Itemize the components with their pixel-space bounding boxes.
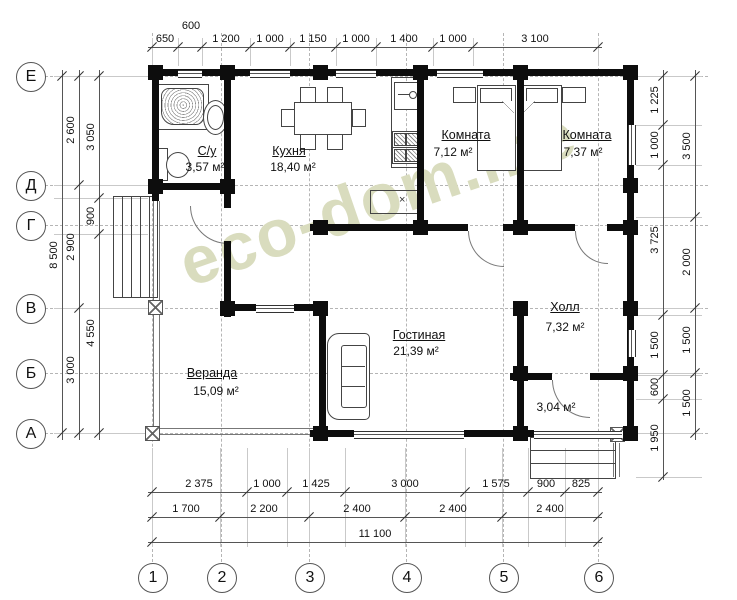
log-joint-square — [513, 220, 528, 235]
dim-extension-line — [345, 448, 346, 547]
dim-extension-line — [54, 433, 148, 434]
dim-extension-line — [250, 38, 251, 66]
log-joint-square — [623, 366, 638, 381]
log-joint-square — [513, 301, 528, 316]
window — [534, 431, 622, 439]
dim-extension-line — [220, 448, 221, 547]
dimension-label: 900 — [85, 207, 97, 225]
dim-extension-line — [465, 448, 466, 547]
log-joint-square — [513, 366, 528, 381]
wall-segment — [517, 69, 524, 232]
dimension-label: 1 700 — [172, 503, 200, 515]
dimension-label: 11 100 — [359, 528, 392, 540]
dimension-label: 600 — [182, 20, 200, 32]
room-area-entry: 3,04 м² — [537, 400, 576, 414]
dim-extension-line — [636, 477, 702, 478]
dimension-label: 1 200 — [212, 33, 240, 45]
dimension-label: 600 — [649, 378, 661, 396]
porch-steps — [530, 437, 616, 479]
dimension-label: 2 400 — [343, 503, 371, 515]
porch-step-line — [531, 450, 615, 451]
dim-extension-line — [405, 448, 406, 547]
dimension-chain-line — [79, 70, 80, 440]
window — [628, 125, 636, 165]
dimension-label: 1 000 — [439, 33, 467, 45]
log-joint-square — [513, 426, 528, 441]
room-label-veranda: Веранда — [187, 366, 237, 380]
stove-burner — [394, 133, 406, 146]
door-arc — [468, 231, 504, 267]
chair — [327, 134, 343, 150]
window — [628, 330, 636, 357]
stove-burner — [394, 149, 406, 162]
dimension-label: 1 500 — [681, 326, 693, 354]
chair — [327, 87, 343, 103]
dimension-label: 4 550 — [85, 319, 97, 347]
dim-extension-line — [528, 448, 529, 547]
dimension-label: 1 400 — [390, 33, 418, 45]
log-joint-square — [313, 426, 328, 441]
dimension-label: 2 375 — [185, 478, 213, 490]
blanket-fold — [523, 101, 535, 113]
log-joint-square — [220, 179, 235, 194]
log-joint-square — [413, 220, 428, 235]
window — [354, 431, 464, 439]
dimension-label: 2 000 — [681, 248, 693, 276]
dining-table — [294, 102, 352, 135]
dimension-label: 825 — [572, 478, 590, 490]
dimension-label: 1 500 — [649, 331, 661, 359]
dimension-chain-line — [695, 70, 696, 440]
door-arc — [575, 231, 608, 264]
dimension-chain-line — [99, 70, 100, 440]
dim-extension-line — [433, 38, 434, 66]
window — [336, 70, 376, 78]
dim-extension-line — [473, 38, 474, 66]
boiler-unit — [370, 190, 418, 214]
dimension-label: 3 000 — [391, 478, 419, 490]
porch-step-line — [531, 463, 615, 464]
dimension-chain-line — [148, 542, 602, 543]
axis-bubble-col: 3 — [295, 563, 325, 593]
veranda-rail — [153, 428, 319, 435]
window — [256, 305, 294, 313]
axis-bubble-col: 6 — [584, 563, 614, 593]
rail-post — [145, 426, 160, 441]
axis-bubble-col: 1 — [138, 563, 168, 593]
sofa-seat — [341, 345, 367, 408]
log-joint-square — [623, 426, 638, 441]
dimension-label: 900 — [537, 478, 555, 490]
dim-extension-line — [247, 448, 248, 547]
dim-extension-line — [178, 38, 179, 66]
dimension-label: 650 — [156, 33, 174, 45]
room-area-veranda: 15,09 м² — [193, 384, 239, 398]
dim-extension-line — [502, 448, 503, 547]
dim-extension-line — [54, 185, 148, 186]
log-joint-square — [623, 65, 638, 80]
dimension-chain-line — [148, 492, 602, 493]
axis-bubble-row: В — [16, 294, 46, 324]
dim-extension-line — [290, 38, 291, 66]
blanket-fold — [502, 101, 514, 113]
dimension-label: 3 100 — [521, 33, 549, 45]
dimension-label: 2 400 — [439, 503, 467, 515]
sofa-cushion-line — [342, 366, 365, 367]
dimension-label: 1 950 — [649, 424, 661, 452]
wall-segment — [319, 301, 326, 437]
bathroom-sink-bowl — [207, 105, 224, 130]
dimension-label: 1 225 — [649, 86, 661, 114]
deck-stair-line — [131, 197, 132, 297]
dimension-label: 3 725 — [649, 226, 661, 254]
dimension-label: 3 500 — [681, 132, 693, 160]
dim-extension-line — [636, 125, 702, 126]
chair — [300, 87, 316, 103]
dimension-label: 2 200 — [250, 503, 278, 515]
axis-bubble-col: 5 — [489, 563, 519, 593]
nightstand — [453, 87, 476, 103]
room-area-bedroom2: 7,37 м² — [564, 145, 603, 159]
dimension-label: 3 000 — [65, 356, 77, 384]
axis-bubble-row: Д — [16, 171, 46, 201]
axis-bubble-row: А — [16, 419, 46, 449]
dim-extension-line — [287, 448, 288, 547]
chair — [352, 109, 366, 127]
room-area-kitchen: 18,40 м² — [270, 160, 316, 174]
log-joint-square — [148, 65, 163, 80]
rail-post — [148, 300, 163, 315]
floor-plan: eco-dom.me ЕДГВБА1234566506001 2001 0001… — [0, 0, 737, 600]
room-label-bedroom2: Комната — [563, 128, 612, 142]
dimension-label: 1 425 — [302, 478, 330, 490]
dimension-label: 2 600 — [65, 116, 77, 144]
dimension-label: 1 000 — [649, 131, 661, 159]
log-joint-square — [313, 65, 328, 80]
dim-extension-line — [54, 76, 148, 77]
window — [250, 70, 290, 78]
dim-extension-line — [54, 308, 148, 309]
dimension-chain-line — [663, 70, 664, 480]
log-joint-square — [313, 220, 328, 235]
axis-bubble-row: Е — [16, 62, 46, 92]
log-joint-square — [413, 65, 428, 80]
dimension-label: 2 900 — [65, 233, 77, 261]
axis-bubble-row: Б — [16, 359, 46, 389]
deck-stair-line — [140, 197, 141, 297]
room-area-bathroom: 3,57 м² — [186, 160, 225, 174]
log-joint-square — [623, 178, 638, 193]
log-joint-square — [313, 301, 328, 316]
room-area-hall: 7,32 м² — [546, 320, 585, 334]
dim-extension-line — [336, 38, 337, 66]
axis-bubble-col: 4 — [392, 563, 422, 593]
room-label-hall: Холл — [550, 300, 579, 314]
deck-stair-line — [149, 197, 150, 297]
axis-bubble-col: 2 — [207, 563, 237, 593]
sofa-cushion-line — [342, 386, 365, 387]
chair — [281, 109, 295, 127]
dimension-label: 1 000 — [256, 33, 284, 45]
room-area-living: 21,39 м² — [393, 344, 439, 358]
dim-extension-line — [152, 448, 153, 547]
dim-extension-line — [202, 38, 203, 66]
dimension-label: 1 575 — [482, 478, 510, 490]
axis-bubble-row: Г — [16, 211, 46, 241]
dimension-label: 1 000 — [253, 478, 281, 490]
dim-extension-line — [376, 38, 377, 66]
room-label-living: Гостиная — [393, 328, 445, 342]
log-joint-square — [623, 301, 638, 316]
dimension-label: 2 400 — [536, 503, 564, 515]
dimension-chain-line — [148, 517, 602, 518]
dim-extension-line — [152, 38, 153, 66]
boiler-mark: × — [399, 194, 405, 206]
dim-extension-line — [636, 315, 702, 316]
dimension-label: 1 000 — [342, 33, 370, 45]
log-joint-square — [220, 65, 235, 80]
window — [437, 70, 483, 78]
log-joint-square — [623, 220, 638, 235]
log-joint-square — [513, 65, 528, 80]
dimension-label: 1 500 — [681, 389, 693, 417]
room-area-bedroom1: 7,12 м² — [434, 145, 473, 159]
dimension-chain-line — [62, 70, 63, 440]
deck-stairs — [113, 196, 158, 298]
shower-pattern — [161, 88, 204, 125]
kitchen-faucet-spout — [398, 94, 410, 95]
deck-stair-line — [122, 197, 123, 297]
log-joint-square — [148, 179, 163, 194]
wall-segment — [310, 224, 468, 231]
dimension-label: 1 150 — [299, 33, 327, 45]
room-label-kitchen: Кухня — [272, 144, 305, 158]
kitchen-faucet — [409, 91, 417, 99]
dim-extension-line — [636, 165, 702, 166]
room-label-bathroom: С/у — [198, 144, 217, 158]
dim-extension-line — [598, 38, 599, 66]
log-joint-square — [220, 301, 235, 316]
nightstand — [562, 87, 586, 103]
room-label-bedroom1: Комната — [442, 128, 491, 142]
wall-segment — [417, 69, 424, 232]
dimension-label: 8 500 — [48, 241, 60, 269]
dimension-label: 3 050 — [85, 123, 97, 151]
dim-extension-line — [309, 448, 310, 547]
window — [178, 70, 202, 78]
